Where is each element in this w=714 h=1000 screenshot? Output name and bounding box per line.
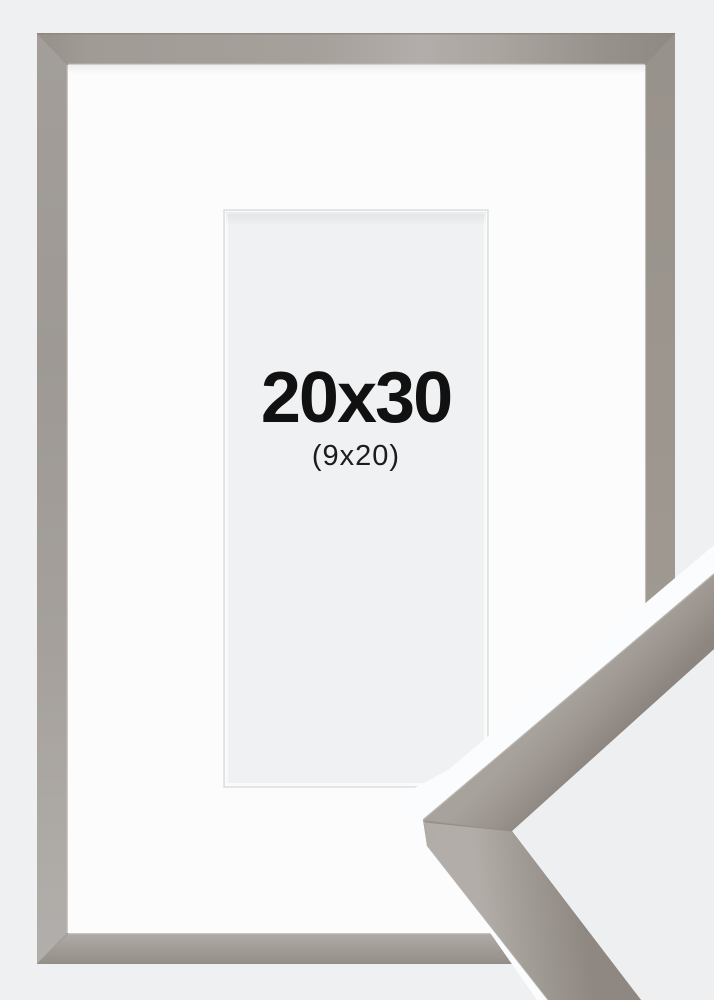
picture-opening-size-label: (9x20) (224, 442, 488, 471)
frame-product-image: 20x30 (9x20) (0, 0, 714, 1000)
size-label-block: 20x30 (9x20) (224, 362, 488, 471)
frame-photo (0, 0, 714, 1000)
frame-size-label: 20x30 (224, 362, 488, 434)
mat-opening (224, 210, 488, 787)
